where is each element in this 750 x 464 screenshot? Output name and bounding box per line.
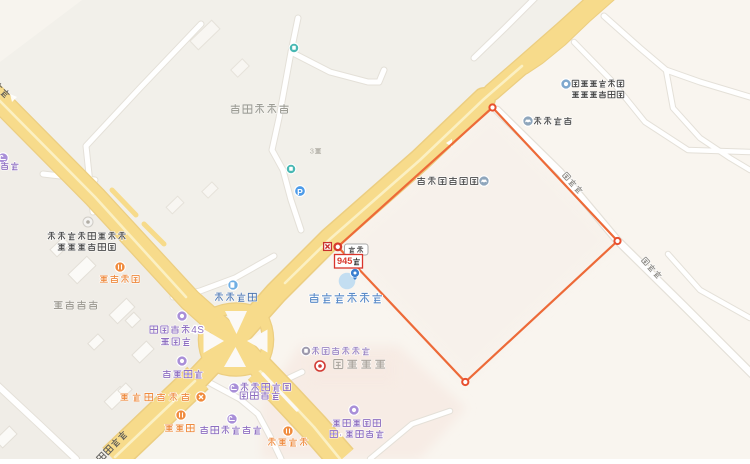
svg-text:3: 3 <box>310 147 314 156</box>
svg-text:4S: 4S <box>191 325 204 336</box>
svg-text:945: 945 <box>337 256 352 266</box>
svg-text:P: P <box>297 187 303 197</box>
svg-text:·: · <box>339 429 342 440</box>
